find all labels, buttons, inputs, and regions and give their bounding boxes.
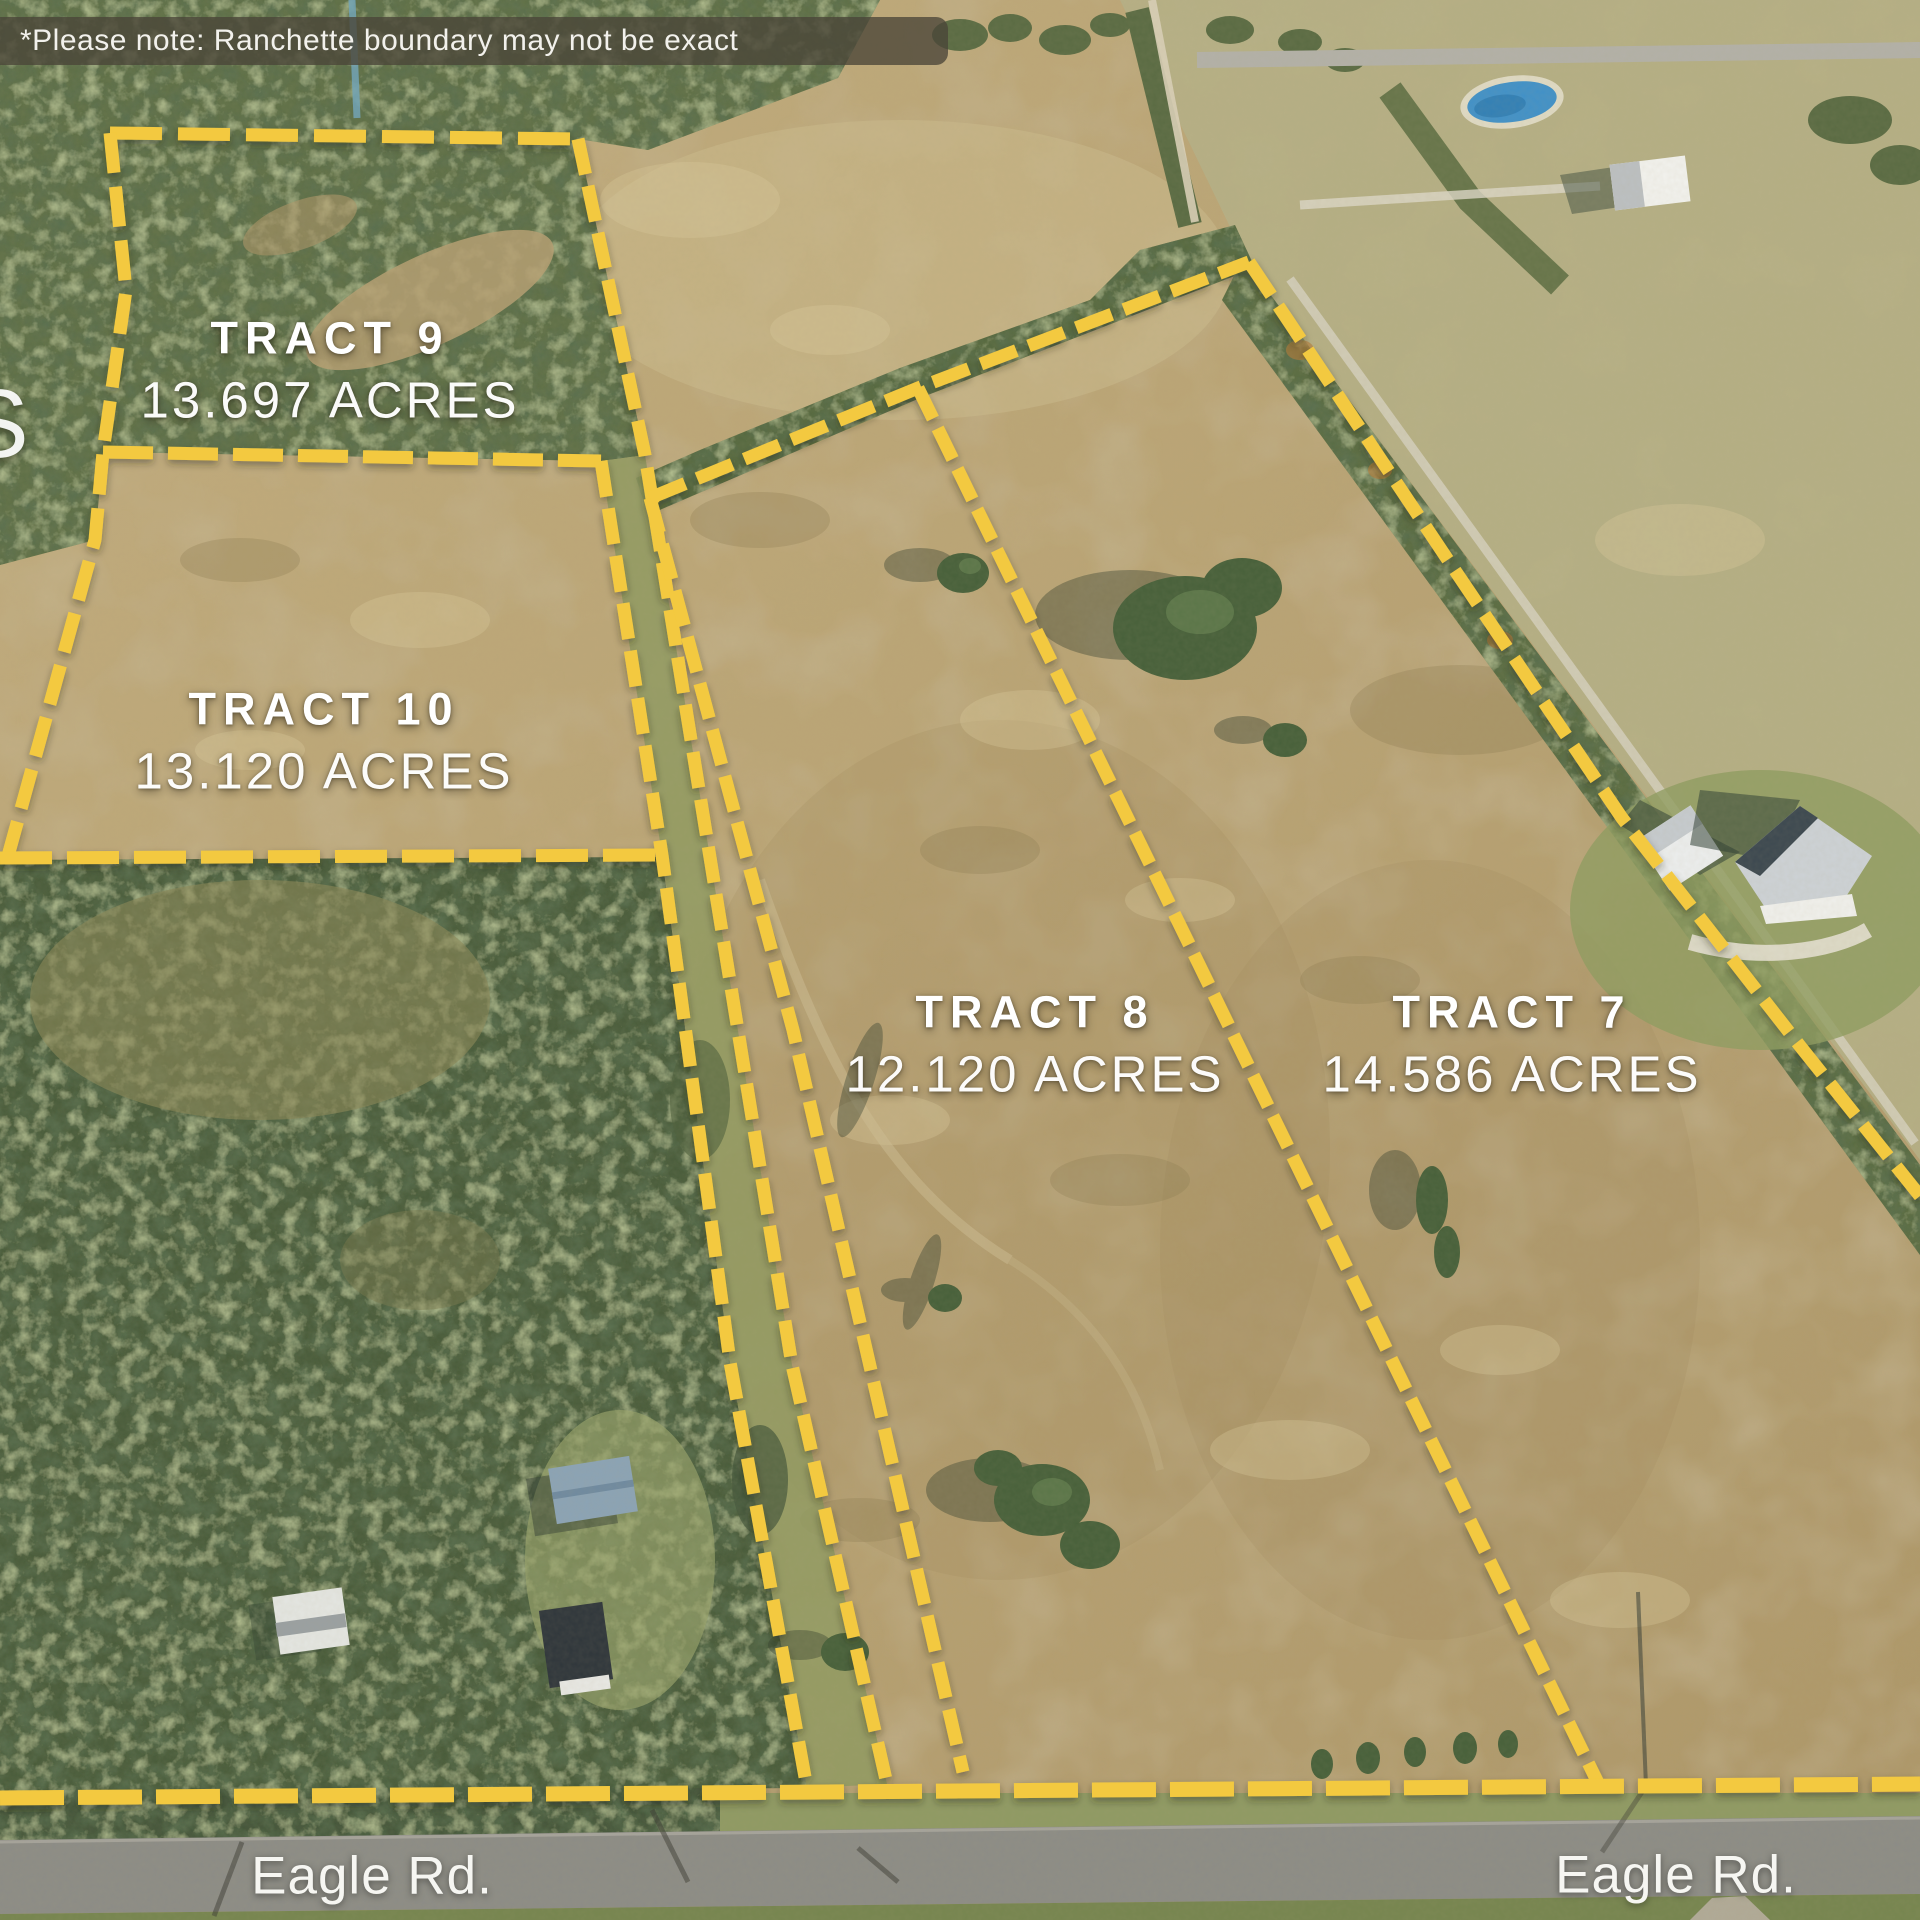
tract-acreage: 13.697 ACRES (140, 371, 519, 430)
tract-acreage: 12.120 ACRES (845, 1045, 1224, 1104)
tract-label-7: TRACT 7 14.586 ACRES (1322, 987, 1701, 1104)
tract-name: TRACT 7 (1322, 987, 1701, 1039)
disclaimer-banner: *Please note: Ranchette boundary may not… (0, 17, 948, 65)
tract-name: TRACT 8 (845, 987, 1224, 1039)
disclaimer-text: *Please note: Ranchette boundary may not… (20, 24, 738, 58)
tract-label-10: TRACT 10 13.120 ACRES (134, 684, 513, 801)
tract-label-8: TRACT 8 12.120 ACRES (845, 987, 1224, 1104)
road-label-eagle-rd-west: Eagle Rd. (251, 1846, 493, 1907)
aerial-photo (0, 0, 1920, 1920)
tract-acreage: 13.120 ACRES (134, 742, 513, 801)
clipped-neighbor-label: S (0, 368, 29, 480)
photo-grain (0, 0, 1920, 1920)
tract-name: TRACT 9 (140, 313, 519, 365)
tract-name: TRACT 10 (134, 684, 513, 736)
tract-label-9: TRACT 9 13.697 ACRES (140, 313, 519, 430)
tract-acreage: 14.586 ACRES (1322, 1045, 1701, 1104)
land-listing-map: TRACT 9 13.697 ACRES TRACT 10 13.120 ACR… (0, 0, 1920, 1920)
road-label-eagle-rd-east: Eagle Rd. (1555, 1845, 1797, 1906)
